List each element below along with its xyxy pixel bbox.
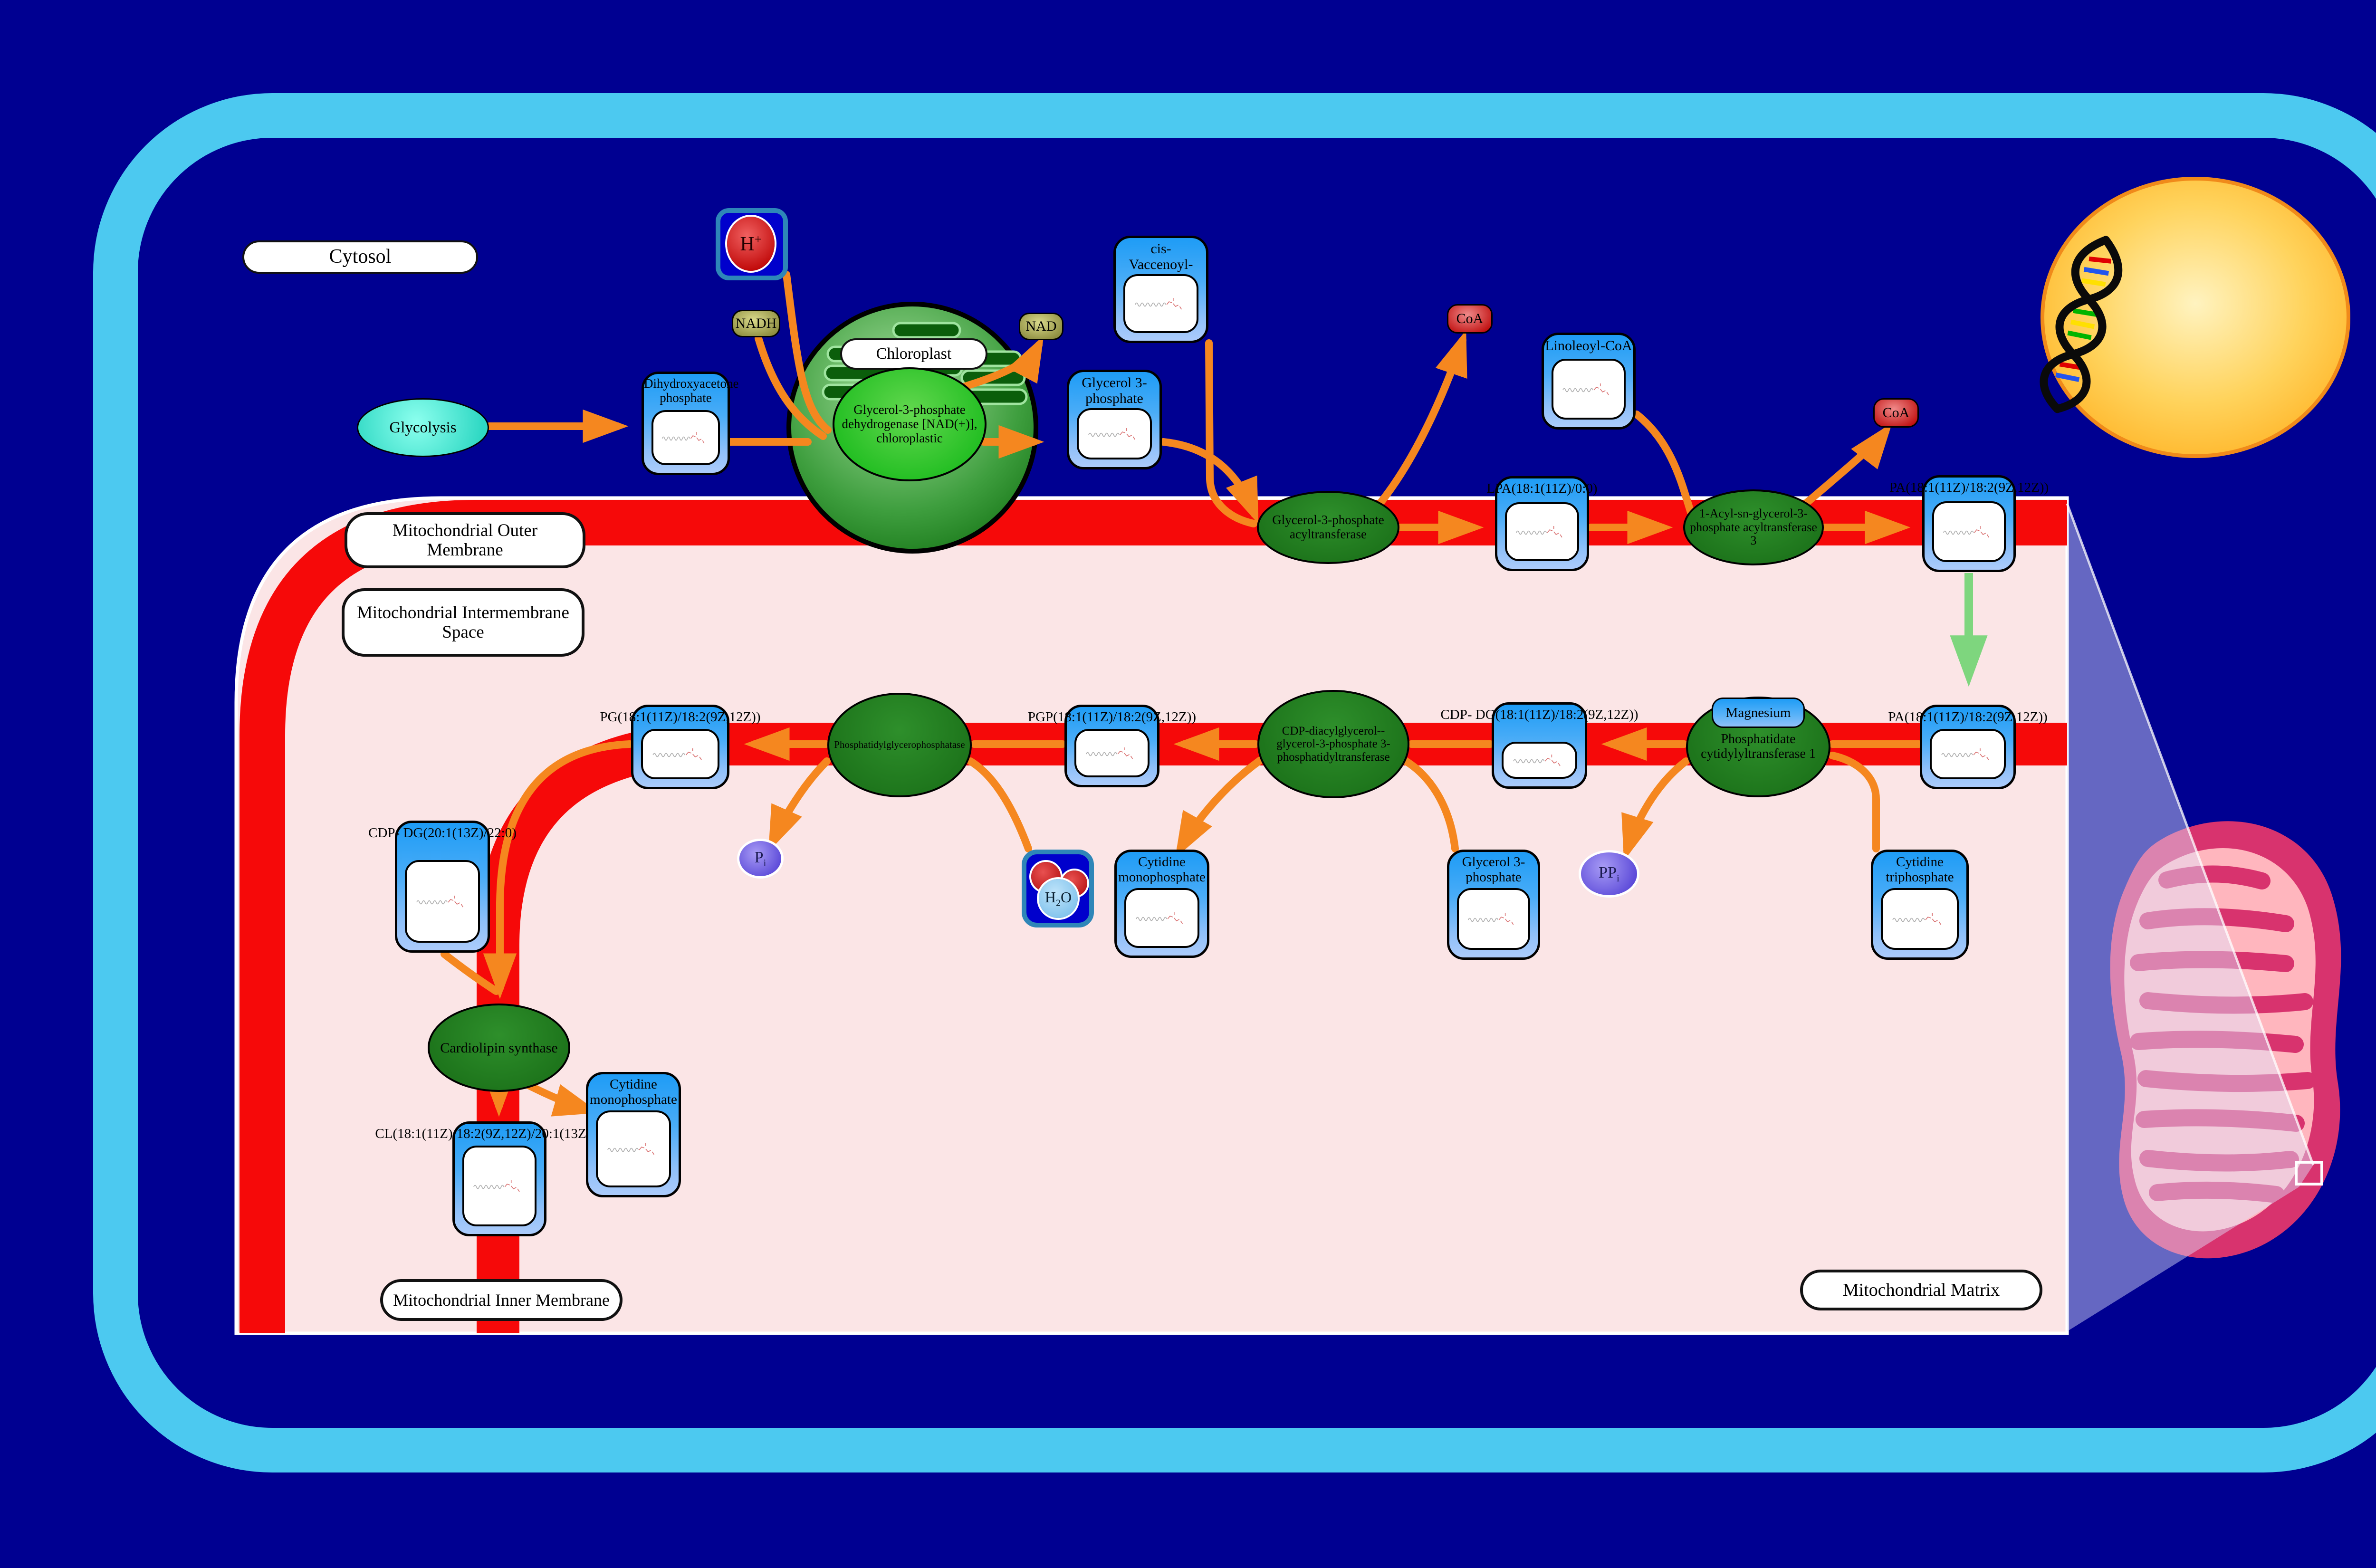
enzyme-cdp-dg-g3p-phosphatidyltransferase[interactable]: CDP-diacylglycerol--glycerol-3-phosphate… [1257,690,1409,798]
metabolite-label: Glycerol 3-phosphate [1069,375,1159,406]
metabolite-glycerol-3-phosphate-cytosol[interactable]: Glycerol 3-phosphate [1067,370,1162,469]
cofactor-label: NAD [1026,318,1057,335]
metabolite-structure-box [462,1146,537,1226]
matrix-label: Mitochondrial Matrix [1800,1270,2042,1310]
structure-drawing [1512,751,1568,770]
intermembrane-space-label: Mitochondrial Intermembrane Space [342,588,584,657]
metabolite-structure-box [1123,274,1198,333]
structure-drawing [415,892,470,911]
metabolite-label: Cytidine monophosphate [588,1077,679,1108]
enzyme-label: Phosphatidate cytidylyltransferase 1 [1693,732,1824,762]
structure-drawing [472,1176,527,1195]
metabolite-structure-box [1502,742,1577,779]
nucleus-illustration [2037,179,2348,456]
metabolite-label: LPA(18:1(11Z)/0:0) [1486,481,1597,497]
metabolite-pa-inner[interactable]: PA(18:1(11Z)/18:2(9Z,12Z)) [1920,705,2016,789]
cofactor-nadh[interactable]: NADH [732,310,780,337]
cofactor-ppi[interactable]: PPi [1581,852,1637,895]
metabolite-pa-outer[interactable]: PA(18:1(11Z)/18:2(9Z,12Z)) [1922,475,2016,572]
cofactor-label: Magnesium [1726,705,1791,721]
metabolite-label: Dihydroxyacetone phosphate [644,377,728,405]
enzyme-agpat3[interactable]: 1-Acyl-sn-glycerol-3-phosphate acyltrans… [1683,489,1824,565]
enzyme-glycerol-3-phosphate-acyltransferase[interactable]: Glycerol-3-phosphate acyltransferase [1257,491,1399,564]
cofactor-label: NADH [736,316,777,332]
metabolite-structure-box [1932,501,2006,562]
water-icon: H2O [1026,854,1089,923]
metabolite-label: CDP- DG(20:1(13Z)/22:0) [368,826,517,841]
structure-drawing [1134,908,1190,927]
cofactor-pi[interactable]: Pi [739,841,781,876]
metabolite-structure-box [1077,408,1152,459]
metabolite-label: Cytidine triphosphate [1873,855,1966,885]
chloroplast-label: Chloroplast [840,338,987,370]
structure-drawing [1466,909,1521,928]
metabolite-label: Glycerol 3-phosphate [1449,855,1538,885]
metabolite-structure-box [1074,729,1150,777]
h-plus-icon: H+ [727,217,775,271]
metabolite-structure-box [405,860,480,943]
structure-drawing [651,745,709,764]
diagram-background-layer [0,0,2376,1568]
metabolite-label: PA(18:1(11Z)/18:2(9Z,12Z)) [1888,710,2047,725]
metabolite-dhap[interactable]: Dihydroxyacetone phosphate [642,372,730,475]
cofactor-label: CoA [1456,311,1484,327]
enzyme-label: Glycerol-3-phosphate acyltransferase [1264,513,1393,541]
metabolite-lpa[interactable]: LPA(18:1(11Z)/0:0) [1495,476,1589,571]
cofactor-nad[interactable]: NAD [1019,313,1063,340]
structure-drawing [1891,909,1949,928]
metabolite-cytidine-monophosphate-2[interactable]: Cytidine monophosphate [586,1072,681,1197]
pathway-diagram: Cytosol Chloroplast Mitochondrial Outer … [0,0,2376,1568]
process-glycolysis[interactable]: Glycolysis [357,398,489,457]
structure-drawing [1087,424,1142,443]
enzyme-label: Glycerol-3-phosphate dehydrogenase [NAD(… [839,403,980,445]
metabolite-label: PA(18:1(11Z)/18:2(9Z,12Z)) [1889,480,2049,496]
enzyme-label: CDP-diacylglycerol--glycerol-3-phosphate… [1264,725,1403,764]
structure-drawing [1940,745,1996,764]
metabolite-structure-box [1505,502,1579,561]
metabolite-label: Cytidine monophosphate [1117,855,1207,885]
structure-drawing [1084,744,1140,763]
outer-membrane-label: Mitochondrial Outer Membrane [345,512,585,568]
metabolite-pgp[interactable]: PGP(18:1(11Z)/18:2(9Z,12Z)) [1064,705,1159,787]
enzyme-phosphatidylglycerophosphatase[interactable]: Phosphatidylglycerophosphatase [827,693,972,797]
metabolite-cdp-dg[interactable]: CDP- DG(18:1(11Z)/18:2(9Z,12Z)) [1492,702,1587,789]
enzyme-glycerol-3-phosphate-dehydrogenase[interactable]: Glycerol-3-phosphate dehydrogenase [NAD(… [833,367,987,481]
metabolite-structure-box [596,1110,671,1187]
cofactor-h-plus[interactable]: H+ [716,208,788,280]
metabolite-label: CDP- DG(18:1(11Z)/18:2(9Z,12Z)) [1440,708,1638,723]
structure-drawing [1942,522,1996,541]
metabolite-structure-box [1552,359,1626,420]
metabolite-structure-box [651,410,720,465]
metabolite-pg[interactable]: PG(18:1(11Z)/18:2(9Z,12Z)) [631,705,729,789]
metabolite-cdp-dg-2[interactable]: CDP- DG(20:1(13Z)/22:0) [395,821,490,953]
metabolite-structure-box [641,729,719,779]
metabolite-linoleoyl-coa[interactable]: Linoleoyl-CoA [1542,333,1636,430]
metabolite-cytidine-monophosphate[interactable]: Cytidine monophosphate [1114,850,1209,958]
enzyme-cardiolipin-synthase[interactable]: Cardiolipin synthase [428,1004,570,1092]
cytosol-label: Cytosol [242,240,478,274]
metabolite-cytidine-triphosphate[interactable]: Cytidine triphosphate [1871,850,1969,960]
cofactor-label: CoA [1883,405,1910,421]
metabolite-cis-vaccenoyl-coa[interactable]: cis- Vaccenoyl-CoA [1113,236,1208,343]
structure-drawing [661,428,711,447]
enzyme-label: Phosphatidylglycerophosphatase [834,739,965,750]
cofactor-coa-2[interactable]: CoA [1873,398,1919,428]
metabolite-structure-box [1881,888,1959,950]
cofactor-magnesium[interactable]: Magnesium [1712,698,1805,728]
metabolite-structure-box [1124,888,1199,948]
cofactor-h2o[interactable]: H2O [1022,850,1094,927]
metabolite-label: PGP(18:1(11Z)/18:2(9Z,12Z)) [1028,710,1196,725]
enzyme-label: Cardiolipin synthase [440,1040,557,1056]
metabolite-label: PG(18:1(11Z)/18:2(9Z,12Z)) [600,710,760,725]
metabolite-structure-box [1930,729,2006,779]
metabolite-glycerol-3-phosphate-matrix[interactable]: Glycerol 3-phosphate [1447,850,1540,960]
inner-membrane-label: Mitochondrial Inner Membrane [380,1279,623,1321]
structure-drawing [606,1139,661,1158]
cofactor-coa-1[interactable]: CoA [1447,304,1493,334]
metabolite-structure-box [1457,888,1530,950]
enzyme-label: 1-Acyl-sn-glycerol-3-phosphate acyltrans… [1690,507,1817,548]
metabolite-label: Linoleoyl-CoA [1544,338,1633,354]
structure-drawing [1561,380,1616,399]
metabolite-cl[interactable]: CL(18:1(11Z)/18:2(9Z,12Z)/20:1(13Z)/22:0… [452,1121,546,1236]
structure-drawing [1514,522,1569,541]
structure-drawing [1133,294,1189,313]
